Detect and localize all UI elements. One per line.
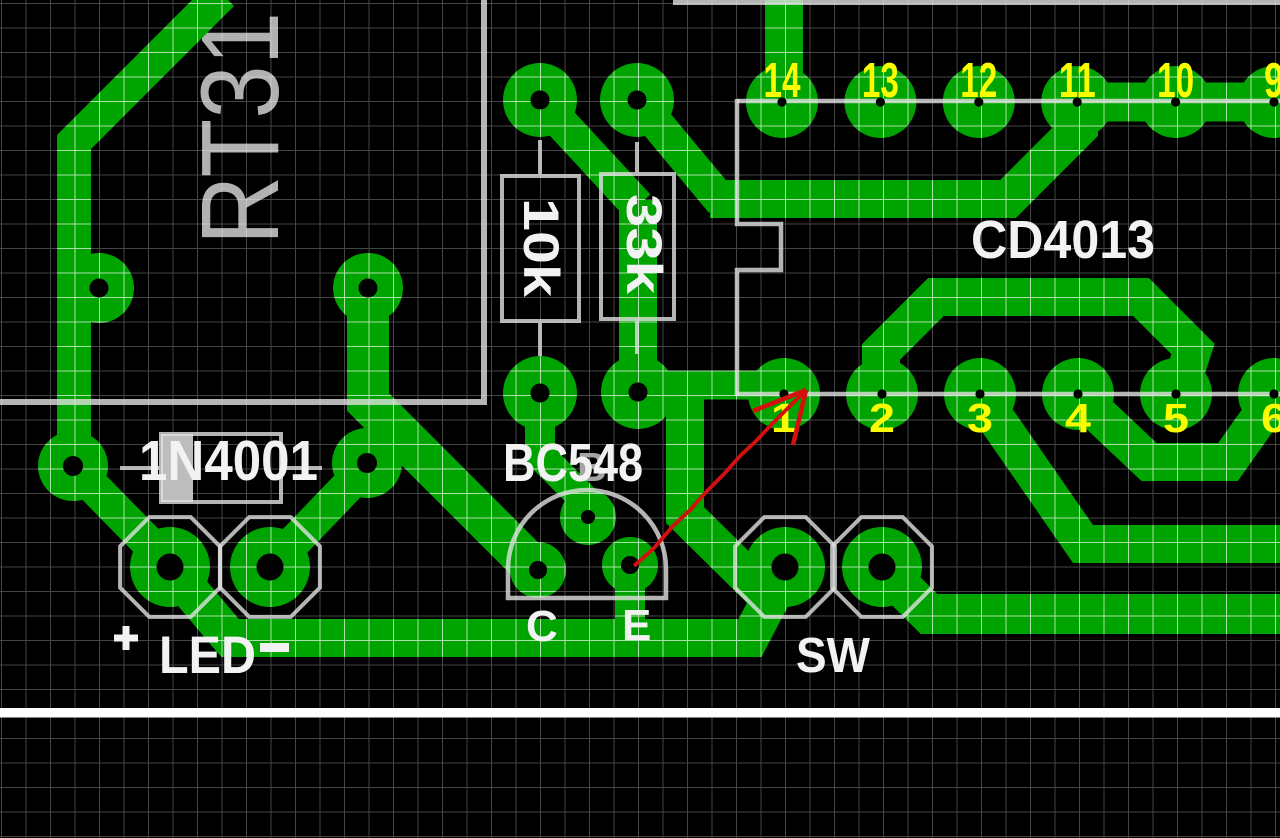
svg-text:10: 10 bbox=[1157, 54, 1194, 108]
svg-text:10k: 10k bbox=[513, 198, 569, 297]
svg-text:6: 6 bbox=[1261, 395, 1280, 441]
svg-text:1N4001: 1N4001 bbox=[139, 429, 318, 493]
svg-text:LED: LED bbox=[159, 626, 256, 685]
svg-text:11: 11 bbox=[1059, 54, 1096, 108]
svg-text:3: 3 bbox=[967, 395, 993, 441]
svg-text:12: 12 bbox=[960, 54, 997, 108]
svg-text:33k: 33k bbox=[616, 194, 672, 294]
svg-text:E: E bbox=[622, 601, 651, 650]
svg-text:14: 14 bbox=[764, 54, 801, 108]
svg-text:13: 13 bbox=[862, 54, 899, 108]
svg-text:9: 9 bbox=[1264, 54, 1280, 108]
svg-text:CD4013: CD4013 bbox=[971, 210, 1155, 270]
svg-text:BC548: BC548 bbox=[503, 433, 643, 493]
svg-text:SW: SW bbox=[796, 629, 871, 683]
svg-text:C: C bbox=[526, 602, 558, 651]
svg-text:2: 2 bbox=[869, 395, 895, 441]
svg-text:5: 5 bbox=[1163, 395, 1189, 441]
svg-text:4: 4 bbox=[1065, 395, 1091, 441]
